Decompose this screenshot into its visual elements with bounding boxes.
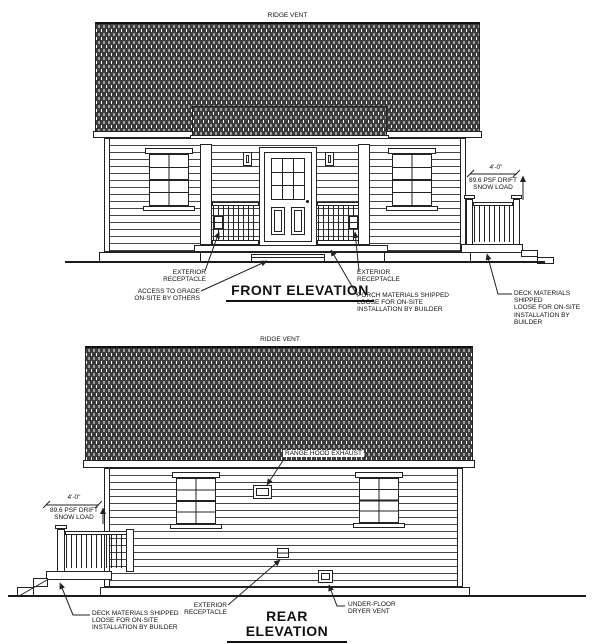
rear-snow-dim: 4'-0" — [48, 494, 100, 501]
porch-light-right-icon — [325, 152, 334, 166]
rear-roof-fascia — [83, 460, 475, 468]
front-ann-porch-materials: PORCH MATERIALS SHIPPED LOOSE FOR ON-SIT… — [357, 292, 457, 314]
front-door-panel-left — [271, 207, 285, 235]
rear-snow-note: 89.6 PSF DRIFT SNOW LOAD — [41, 507, 107, 521]
rear-window-right — [359, 478, 399, 523]
front-ann-receptacle-left: EXTERIOR RECEPTACLE — [146, 269, 206, 283]
front-corner-board-left — [104, 138, 110, 252]
rear-window-left-sill — [170, 524, 222, 529]
front-deck-post-right — [513, 199, 520, 245]
front-porch-post-left — [200, 144, 212, 245]
rear-corner-board-left — [104, 468, 110, 587]
rear-ann-dryer-vent: UNDER-FLOOR DRYER VENT — [348, 601, 418, 615]
front-deck-band — [461, 244, 523, 253]
front-receptacle-right-icon — [349, 216, 358, 229]
front-window-right-sill — [386, 206, 438, 211]
rear-deck-balusters — [66, 535, 126, 568]
rear-roof-shingles — [85, 346, 473, 461]
front-window-left — [149, 154, 189, 206]
leader-front-deck-materials — [487, 254, 512, 294]
front-window-right — [392, 154, 432, 206]
rear-range-hood-label: RANGE HOOD EXHAUST — [283, 450, 364, 457]
leader-rear-deck-materials — [60, 583, 90, 615]
rear-corner-board-right — [457, 468, 463, 587]
rear-ann-receptacle: EXTERIOR RECEPTACLE — [165, 602, 227, 616]
rear-deck-step-1 — [33, 578, 48, 587]
range-hood-vent-icon — [253, 485, 272, 499]
front-door-knob-icon — [306, 200, 309, 203]
rear-elevation-title: REAR ELEVATION — [227, 609, 347, 643]
rear-deck-post-left — [57, 529, 65, 572]
front-porch-roof-shingles — [192, 106, 387, 136]
front-door-lite-grid — [271, 158, 305, 200]
front-deck-post-left — [466, 199, 473, 245]
front-deck-step-1 — [521, 250, 538, 257]
rear-deck-band — [46, 571, 112, 580]
front-porch-post-right — [358, 144, 370, 245]
rear-window-left — [176, 478, 216, 524]
front-snow-dim: 4'-0" — [470, 164, 522, 171]
front-door-panel-right — [291, 207, 305, 235]
dryer-vent-icon — [318, 570, 333, 583]
rear-ground-line — [8, 595, 586, 597]
front-ann-receptacle-right: EXTERIOR RECEPTACLE — [357, 269, 427, 283]
front-ridge-vent-label: RIDGE VENT — [95, 12, 480, 19]
rear-receptacle-icon — [277, 548, 289, 558]
front-elevation-title: FRONT ELEVATION — [226, 283, 374, 302]
rear-ridge-vent-label: RIDGE VENT — [85, 336, 475, 343]
front-snow-note: 89.6 PSF DRIFT SNOW LOAD — [460, 177, 526, 191]
rear-deck-post-right — [126, 529, 134, 572]
porch-light-left-icon — [243, 152, 252, 166]
front-porch-floor-band — [194, 245, 388, 252]
drawing-sheet: RIDGE VENT 4'-0" 89.6 PSF DRIFT — [0, 0, 600, 644]
front-window-left-sill — [143, 206, 195, 211]
rear-window-right-sill — [353, 523, 405, 528]
rear-wall-siding — [104, 468, 463, 587]
front-ann-access-grade: ACCESS TO GRADE ON-SITE BY OTHERS — [118, 288, 200, 302]
front-ground-line — [65, 261, 545, 263]
front-deck-balusters — [474, 206, 513, 242]
front-ann-deck-materials: DECK MATERIALS SHIPPED LOOSE FOR ON-SITE… — [514, 290, 599, 326]
front-receptacle-left-icon — [214, 216, 223, 229]
